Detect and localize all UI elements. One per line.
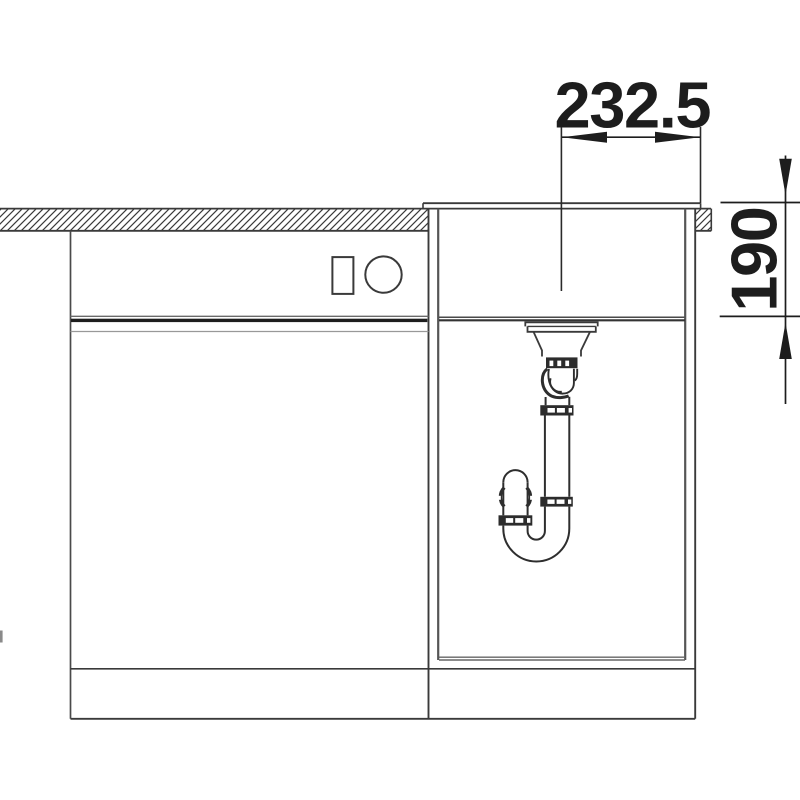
svg-text:190: 190 [718,207,791,311]
svg-text:232.5: 232.5 [554,68,710,141]
